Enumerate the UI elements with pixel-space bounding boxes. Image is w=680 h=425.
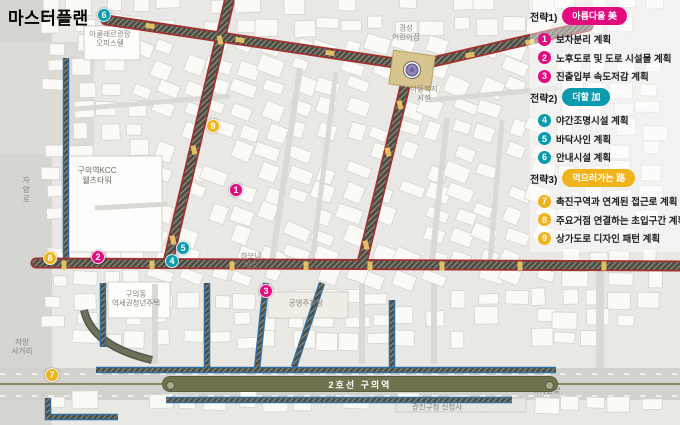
legend-item-number: 7 (538, 195, 551, 208)
map-marker-2: 2 (91, 250, 105, 264)
legend-item-text: 노후도로 및 도로 시설물 계획 (556, 51, 671, 65)
legend-item-7: 7촉진구역과 연계된 접근로 계획 (538, 194, 678, 208)
legend-item-text: 상가도로 디자인 패턴 계획 (556, 231, 660, 245)
legend-item-number: 8 (538, 213, 551, 226)
legend-strategy-pill: 먹으러가는 路 (562, 169, 635, 187)
label-guui-housing: 구의동 역세권청년주택 (112, 290, 160, 309)
legend-item-text: 촉진구역과 연계된 접근로 계획 (556, 194, 678, 208)
legend-item-9: 9상가도로 디자인 패턴 계획 (538, 231, 678, 245)
map-marker-8: 8 (43, 251, 57, 265)
map-marker-1: 1 (229, 183, 243, 197)
legend-item-text: 바닥사인 계획 (556, 132, 611, 146)
legend-group-header: 전략2)더할 加 (530, 88, 678, 106)
legend-strategy-pill: 아름다울 美 (562, 7, 627, 25)
legend-item-3: 3진출입부 속도저감 계획 (538, 69, 678, 83)
legend-item-1: 1보차분리 계획 (538, 32, 678, 46)
map-marker-3: 3 (259, 284, 273, 298)
legend-group-header: 전략1)아름다울 美 (530, 7, 678, 25)
legend-item-text: 주요거점 연결하는 초입구간 계획 (556, 213, 680, 227)
legend-group-3: 전략3)먹으러가는 路7촉진구역과 연계된 접근로 계획8주요거점 연결하는 초… (530, 169, 678, 245)
legend-item-number: 1 (538, 33, 551, 46)
legend-item-text: 보차분리 계획 (556, 32, 611, 46)
legend-item-number: 2 (538, 51, 551, 64)
legend-item-6: 6안내시설 계획 (538, 150, 678, 164)
map-marker-5: 5 (176, 241, 190, 255)
label-harmony-mart: 하모니 마트 (241, 252, 262, 271)
legend-item-text: 진출입부 속도저감 계획 (556, 69, 649, 83)
legend-item-number: 9 (538, 232, 551, 245)
masterplan-page: 2호선 구의역 아클레르광장 오피스텔경성 어린이집아동복지 시설구의역KCC … (0, 0, 680, 425)
subway-line2-guui-station: 2호선 구의역 (162, 376, 558, 392)
legend-item-2: 2노후도로 및 도로 시설물 계획 (538, 51, 678, 65)
legend-strategy-pill: 더할 加 (562, 88, 610, 106)
map-marker-7: 7 (45, 368, 59, 382)
label-jayang-ro: 자양로 (21, 176, 30, 205)
map-marker-4: 4 (165, 254, 179, 268)
legend-item-5: 5바닥사인 계획 (538, 132, 678, 146)
label-gwangjin-office: 광진구청 신청사 (412, 402, 462, 411)
legend-item-text: 안내시설 계획 (556, 150, 611, 164)
label-jayang-crossing: 자양 사거리 (12, 338, 33, 357)
legend-item-number: 5 (538, 132, 551, 145)
legend-item-number: 3 (538, 70, 551, 83)
map-marker-9: 9 (206, 119, 220, 133)
legend-group-1: 전략1)아름다울 美1보차분리 계획2노후도로 및 도로 시설물 계획3진출입부… (530, 7, 678, 83)
map-marker-6: 6 (97, 8, 111, 22)
label-child-welfare: 아동복지 시설 (410, 85, 438, 104)
page-title: 마스터플랜 (8, 4, 89, 29)
rail-label: 2호선 구의역 (329, 378, 392, 391)
legend-strategy-label: 전략1) (530, 9, 557, 24)
legend-group-header: 전략3)먹으러가는 路 (530, 169, 678, 187)
legend: 전략1)아름다울 美1보차분리 계획2노후도로 및 도로 시설물 계획3진출입부… (530, 2, 678, 250)
legend-item-number: 6 (538, 151, 551, 164)
legend-strategy-label: 전략2) (530, 90, 557, 105)
label-kcc-tower: 구의역KCC 웰츠타워 (78, 166, 117, 186)
legend-item-4: 4야간조명시설 계획 (538, 113, 678, 127)
label-officetel: 아클레르광장 오피스텔 (89, 30, 130, 49)
legend-item-8: 8주요거점 연결하는 초입구간 계획 (538, 213, 678, 227)
label-public-parking: 공영주차장 (289, 298, 324, 307)
legend-item-text: 야간조명시설 계획 (556, 113, 629, 127)
label-daycare: 경성 어린이집 (392, 24, 420, 43)
legend-group-2: 전략2)더할 加4야간조명시설 계획5바닥사인 계획6안내시설 계획 (530, 88, 678, 164)
legend-strategy-label: 전략3) (530, 171, 557, 186)
legend-item-number: 4 (538, 114, 551, 127)
